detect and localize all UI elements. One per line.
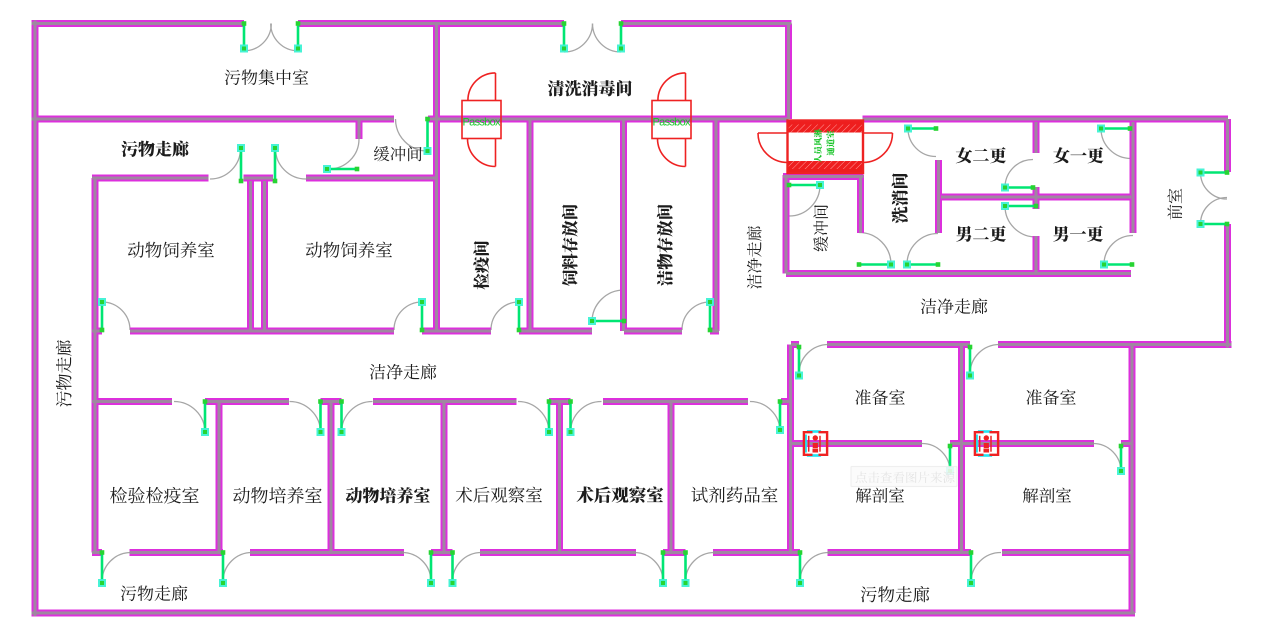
svg-text:Passbox: Passbox xyxy=(463,117,502,129)
svg-text:Passbox: Passbox xyxy=(653,117,692,129)
